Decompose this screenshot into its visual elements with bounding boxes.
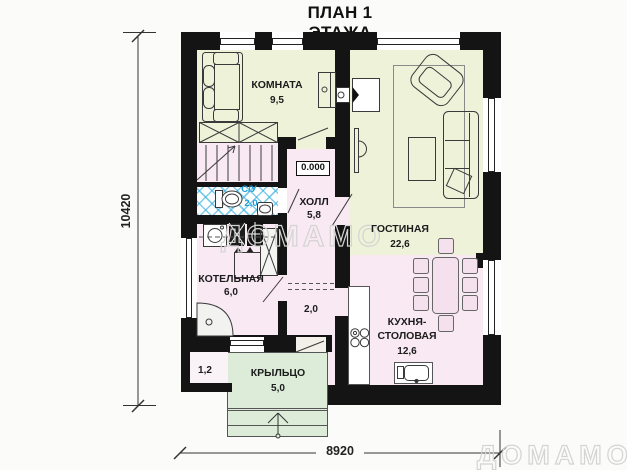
floor-plan-canvas: ПЛАН 1 ЭТАЖА — [0, 0, 627, 470]
label-kryltso-area: 5,0 — [238, 383, 318, 395]
label-gostinaya-area: 22,6 — [360, 239, 440, 251]
label-kholl: ХОЛЛ — [284, 196, 344, 208]
label-tambur-area: 2,0 — [296, 304, 326, 316]
label-kotelnaya-area: 6,0 — [189, 287, 273, 299]
label-sanuzel: С/У — [234, 185, 264, 196]
label-kitchen-line1: КУХНЯ- — [367, 316, 447, 328]
label-kitchen-line2: СТОЛОВАЯ — [367, 330, 447, 342]
dim-height: 10420 — [119, 181, 133, 241]
label-kladovka-area: 1,2 — [188, 365, 222, 377]
elevation-mark: 0.000 — [296, 161, 330, 176]
label-komnata: КОМНАТА — [237, 79, 317, 91]
label-kholl-area: 5,8 — [284, 210, 344, 222]
label-kotelnaya: КОТЕЛЬНАЯ — [189, 273, 273, 285]
watermark-corner: ДОМАМО — [477, 440, 627, 470]
label-kitchen-area: 12,6 — [367, 346, 447, 358]
label-gostinaya: ГОСТИНАЯ — [360, 223, 440, 235]
label-komnata-area: 9,5 — [237, 95, 317, 107]
dim-width: 8920 — [316, 444, 364, 458]
label-kryltso: КРЫЛЬЦО — [238, 367, 318, 379]
label-sanuzel-area: 2,0 — [236, 199, 266, 210]
